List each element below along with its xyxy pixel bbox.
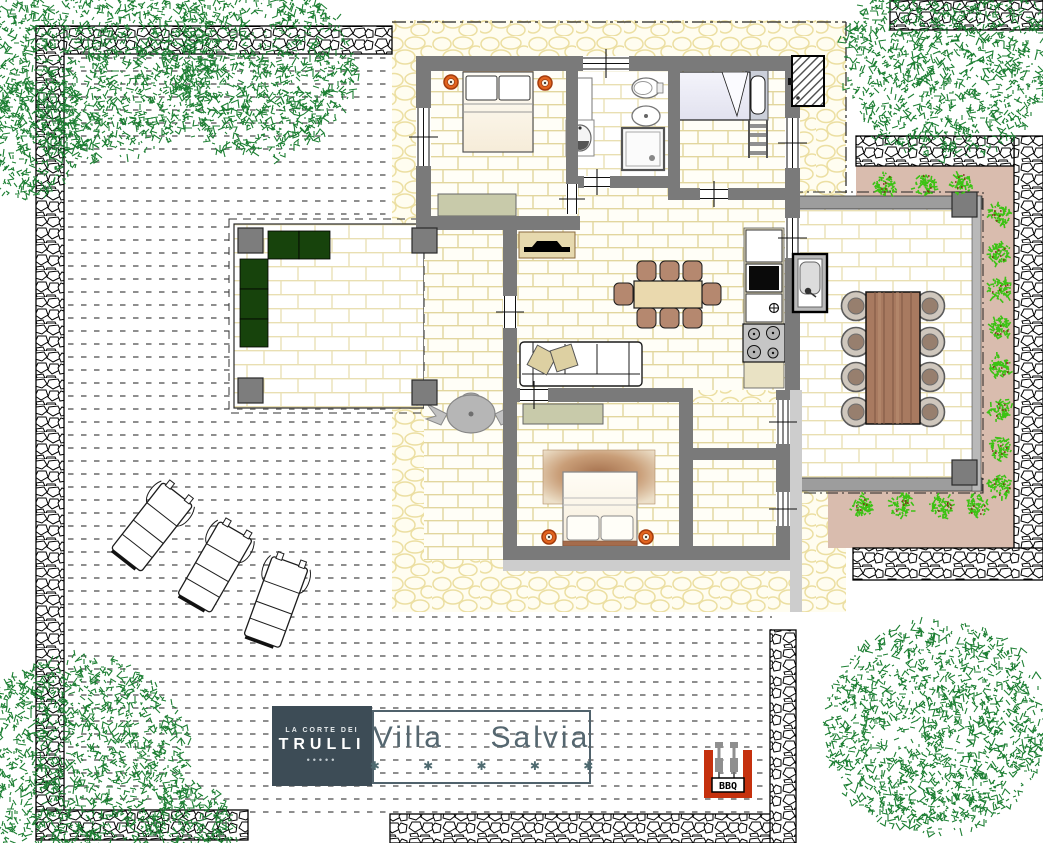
wardrobe-top-bedroom (438, 194, 516, 216)
pillar (952, 192, 977, 217)
kitchen-sink (746, 294, 782, 322)
stove (743, 324, 785, 362)
pillar (238, 228, 263, 253)
double-bed-master (563, 472, 637, 546)
pillar (412, 228, 437, 253)
fridge (746, 230, 782, 262)
pillar (412, 380, 437, 405)
stone-wall (856, 136, 1014, 166)
bedside-lamp-icon (444, 75, 458, 89)
living-sofa (520, 342, 642, 386)
wall (668, 188, 800, 200)
stone-wall (1014, 136, 1043, 556)
dining-chair (637, 261, 656, 281)
plan-title-box: Villa Salvia ✱ ✱ ✱ ✱ ✱ (372, 710, 591, 784)
dining-chair (683, 308, 702, 328)
pillar (952, 460, 977, 485)
wall (416, 216, 580, 230)
wall (503, 546, 790, 560)
brand-logo: LA CORTE DEI TRULLI ••••• (272, 706, 372, 786)
wall (679, 448, 790, 460)
wardrobe-master (523, 404, 603, 424)
logo-stars: ••••• (307, 755, 338, 765)
wall (668, 56, 680, 188)
dining-chair (702, 283, 721, 305)
bedside-lamp-icon (538, 76, 552, 90)
bedside-lamp-icon (542, 530, 556, 544)
exterior-unit (788, 56, 824, 106)
pergola-dining-area (791, 192, 983, 493)
shower (622, 128, 664, 170)
wall (566, 176, 680, 188)
bidet (632, 106, 660, 126)
dining-chair (637, 308, 656, 328)
stone-wall (390, 814, 774, 843)
garden-bed-bottom (828, 490, 1014, 548)
dining-chair (614, 283, 633, 305)
exterior-trim-right (790, 390, 802, 612)
stone-wall (770, 630, 796, 843)
bedside-lamp-icon (639, 530, 653, 544)
dining-chair (660, 261, 679, 281)
dining-chair (683, 261, 702, 281)
outdoor-sink (793, 254, 827, 312)
pillar (238, 378, 263, 403)
logo-title: TRULLI (279, 736, 366, 754)
oven (746, 264, 782, 292)
dining-table (634, 281, 702, 308)
logo-subtitle: LA CORTE DEI (285, 727, 358, 734)
pergola-beam-right (972, 196, 981, 491)
stone-wall (853, 548, 1043, 580)
dining-chair (660, 308, 679, 328)
wall (566, 56, 578, 188)
floor-plan: BBQ LA CORTE DEI TRULLI ••••• Villa Salv… (0, 0, 1043, 843)
back-rooms-floor (693, 402, 776, 546)
wall (679, 388, 693, 560)
kitchen (743, 228, 785, 388)
villa-title: Villa Salvia (373, 721, 591, 755)
tv-console (519, 232, 575, 258)
outdoor-table (866, 292, 920, 424)
bbq-label: BBQ (719, 781, 737, 792)
villa-stars: ✱ ✱ ✱ ✱ ✱ (350, 759, 614, 773)
gravel-patio-left (64, 54, 392, 814)
exterior-trim-bottom (503, 560, 802, 571)
double-bed-top (463, 71, 533, 152)
wall (503, 388, 517, 560)
